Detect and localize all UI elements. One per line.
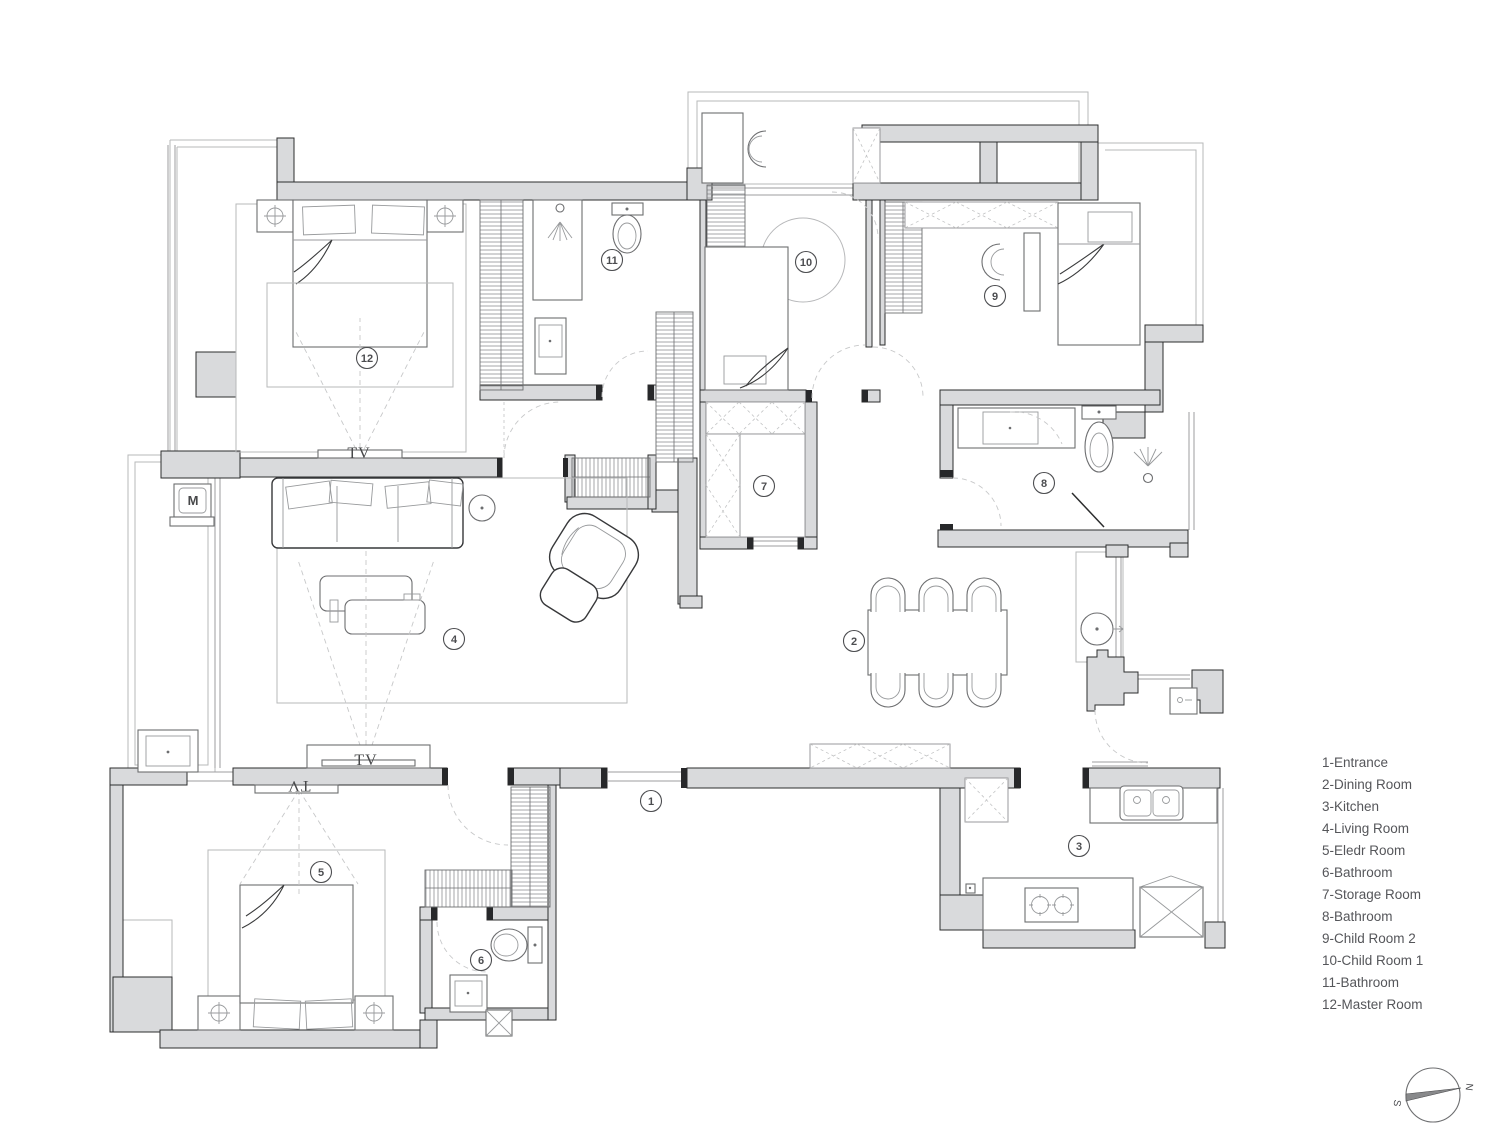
wardrobe-hatch-strips — [425, 185, 922, 907]
legend-item: 10-Child Room 1 — [1322, 950, 1423, 972]
room-badge-number: 8 — [1041, 478, 1047, 490]
living-room-furniture — [272, 478, 646, 703]
room-badge-number: 9 — [992, 291, 998, 303]
room-badge-number: 4 — [451, 634, 458, 646]
room-badge-number: 2 — [851, 636, 857, 648]
compass-south-label: S — [1391, 1099, 1403, 1107]
room-badge-number: 5 — [318, 867, 324, 879]
room-badge-number: 10 — [800, 257, 812, 269]
legend-item: 4-Living Room — [1322, 818, 1423, 840]
compass-north-label: N — [1463, 1083, 1475, 1092]
legend-item: 3-Kitchen — [1322, 796, 1423, 818]
compass: N S — [1391, 1068, 1475, 1122]
legend-item: 12-Master Room — [1322, 994, 1423, 1016]
laundry-balcony-fixtures — [138, 484, 214, 772]
floor-plan-drawing: TV TV TV M 123456789101112 N S — [0, 0, 1500, 1142]
elder-room-furniture — [198, 850, 393, 1030]
legend-item: 1-Entrance — [1322, 752, 1423, 774]
child-room-1-furniture — [702, 113, 845, 390]
room-badge-number: 6 — [478, 955, 484, 967]
washing-machine-label: M — [188, 493, 199, 508]
legend-item: 5-Eledr Room — [1322, 840, 1423, 862]
legend-item: 2-Dining Room — [1322, 774, 1423, 796]
room-badge-number: 1 — [648, 796, 654, 808]
tv-label-living: TV — [354, 752, 377, 769]
legend-item: 6-Bathroom — [1322, 862, 1423, 884]
dining-room-furniture — [868, 578, 1197, 714]
tv-label-elder: TV — [287, 777, 310, 794]
room-badge-number: 11 — [606, 255, 618, 267]
room-badge-number: 7 — [761, 481, 767, 493]
legend-item: 9-Child Room 2 — [1322, 928, 1423, 950]
floor-plan-page: TV TV TV M 123456789101112 N S 1-Entranc… — [0, 0, 1500, 1142]
legend-item: 8-Bathroom — [1322, 906, 1423, 928]
room-badge-number: 3 — [1076, 841, 1082, 853]
tv-label-master: TV — [347, 445, 370, 462]
legend-item: 7-Storage Room — [1322, 884, 1423, 906]
room-badge-number: 12 — [361, 353, 373, 365]
legend-item: 11-Bathroom — [1322, 972, 1423, 994]
legend: 1-Entrance2-Dining Room3-Kitchen4-Living… — [1322, 752, 1423, 1016]
master-room-furniture — [236, 200, 466, 452]
bathroom-11-fixtures — [533, 200, 643, 374]
